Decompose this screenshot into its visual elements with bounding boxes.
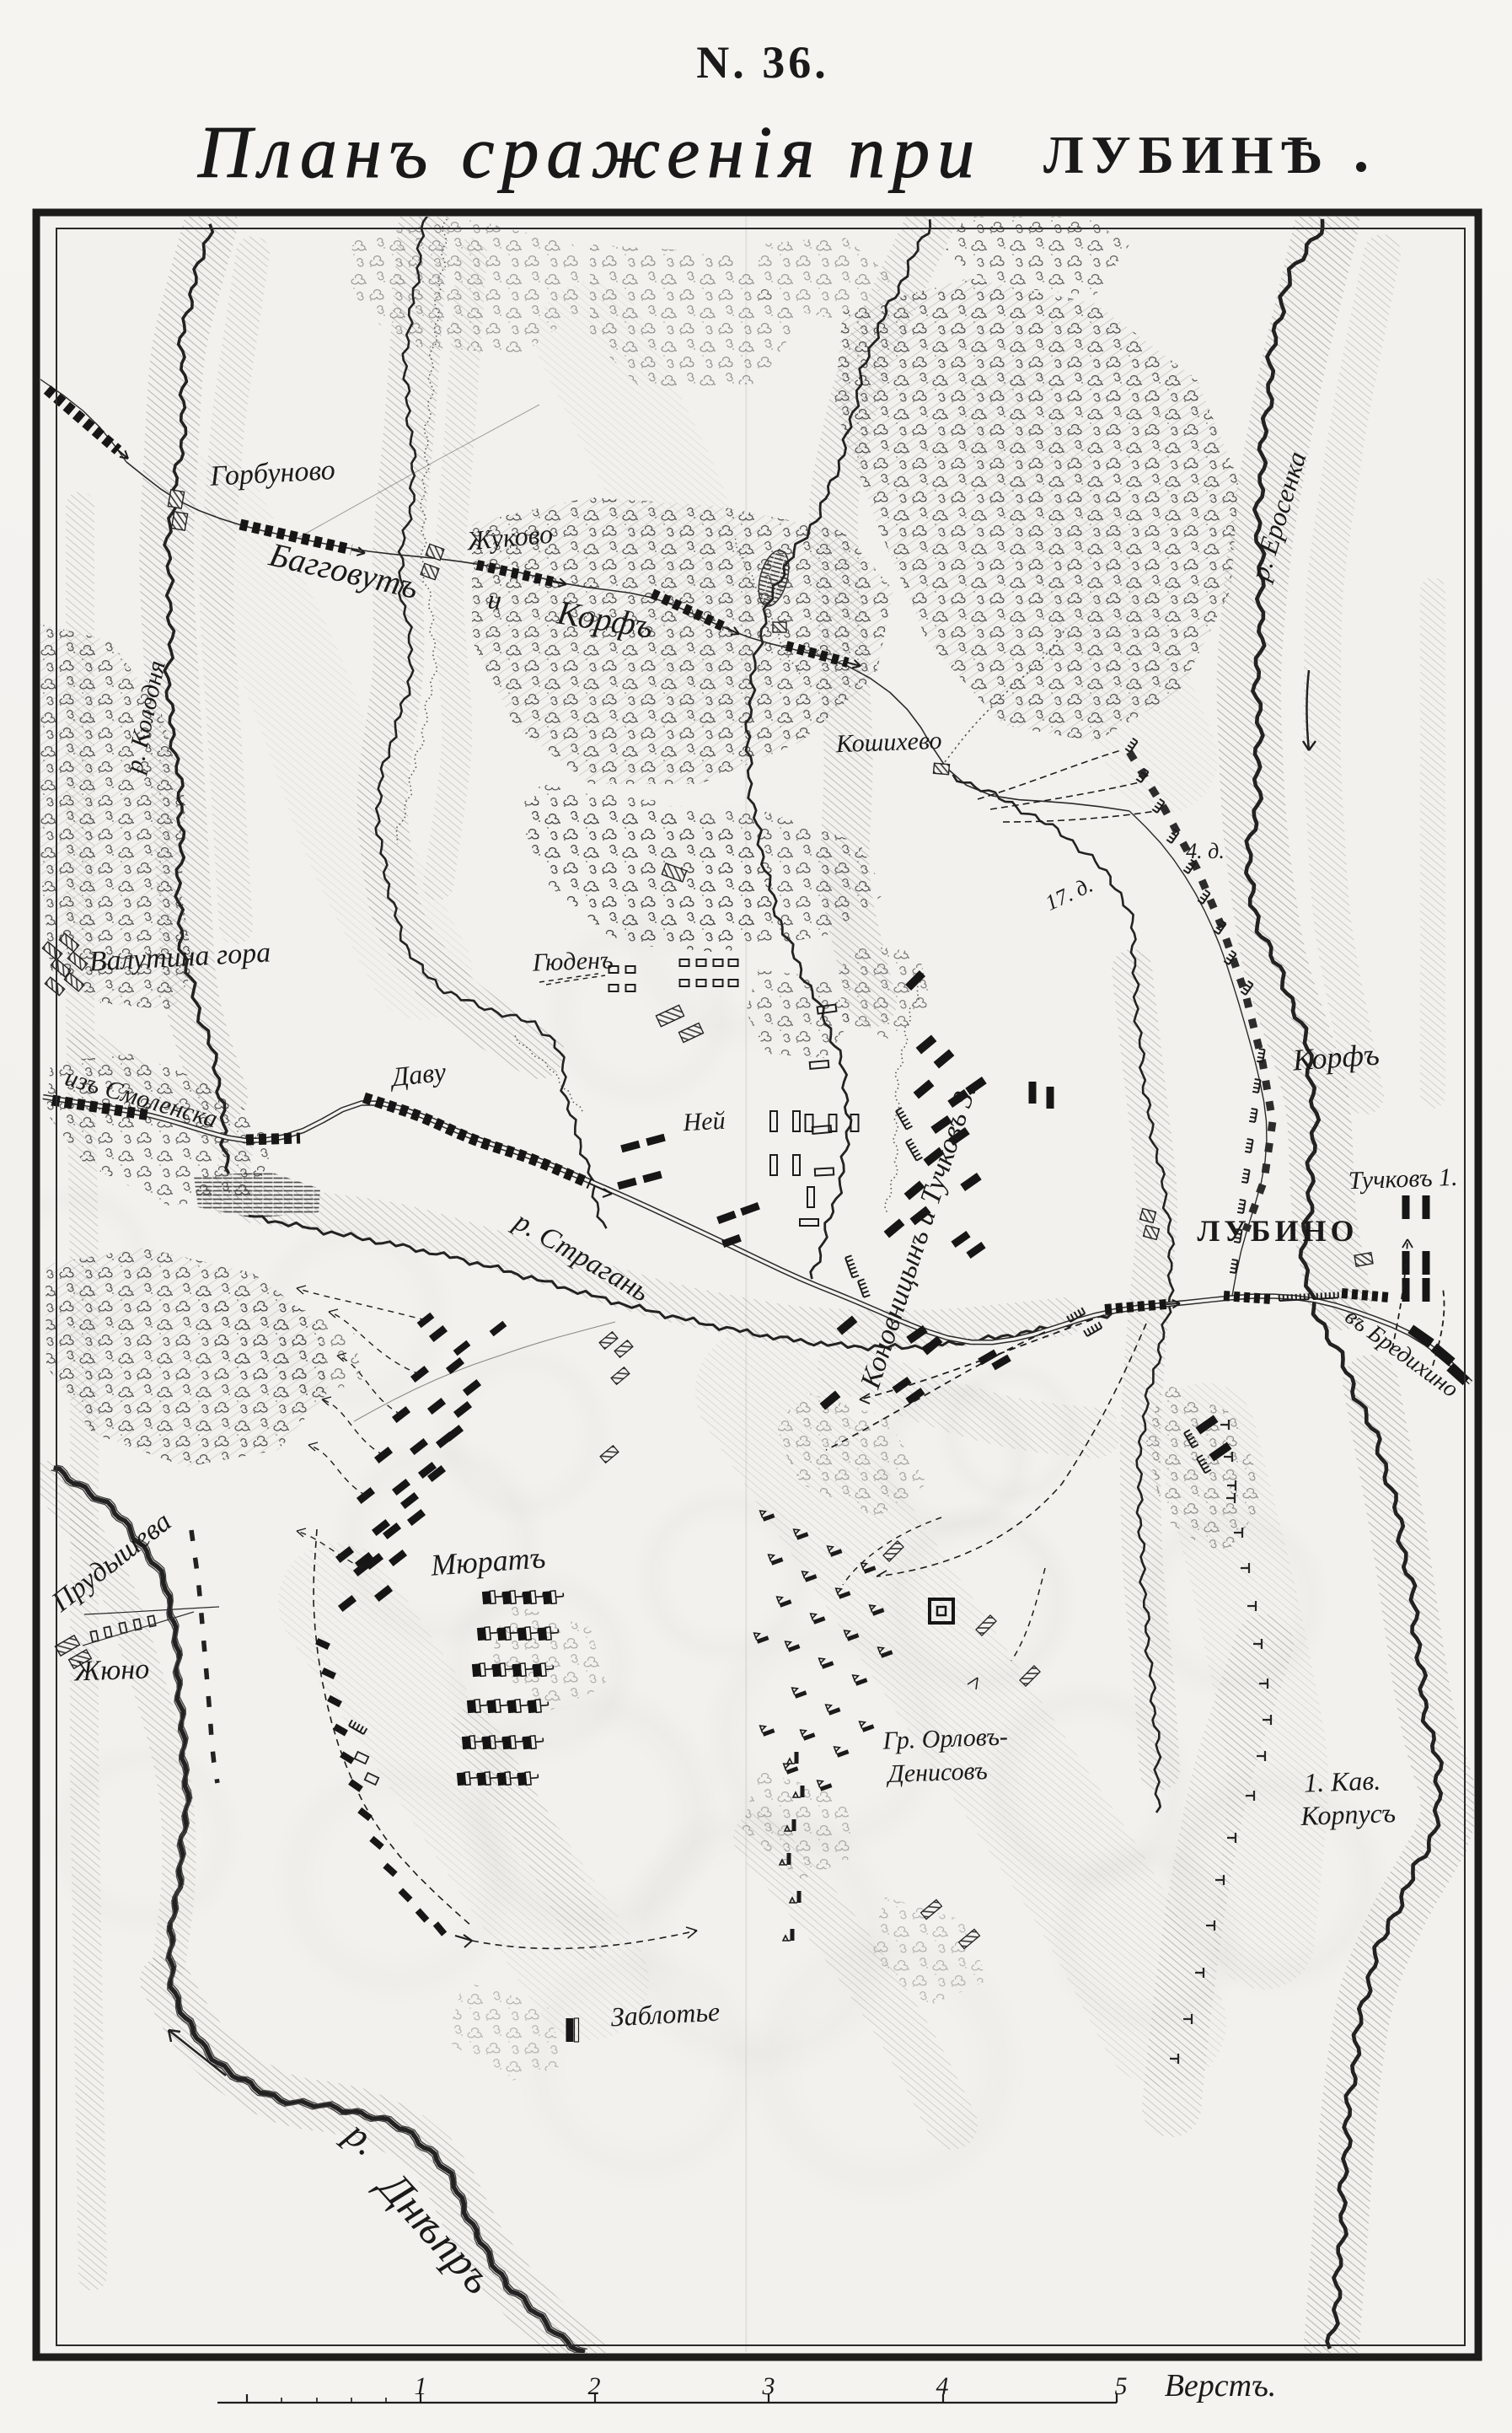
svg-text:Верстъ.: Верстъ. <box>1165 2368 1277 2403</box>
svg-text:5: 5 <box>1115 2372 1128 2400</box>
svg-text:3: 3 <box>762 2372 775 2400</box>
svg-text:1: 1 <box>415 2372 427 2400</box>
svg-text:1. Кав.: 1. Кав. <box>1303 1764 1381 1797</box>
svg-text:Тучковъ 1.: Тучковъ 1. <box>1348 1163 1458 1195</box>
svg-text:Корфъ: Корфъ <box>1291 1037 1381 1077</box>
svg-text:4: 4 <box>936 2372 949 2400</box>
svg-text:Гр. Орловъ-: Гр. Орловъ- <box>882 1722 1008 1754</box>
svg-text:Планъ сраженія при: Планъ сраженія при <box>197 112 982 194</box>
svg-text:Кошихево: Кошихево <box>834 727 942 758</box>
svg-text:N. 36.: N. 36. <box>696 37 829 88</box>
svg-text:Горбуново: Горбуново <box>208 454 335 492</box>
svg-text:2: 2 <box>588 2372 601 2400</box>
svg-text:Заблотье: Заблотье <box>610 1996 721 2033</box>
svg-text:Денисовъ: Денисовъ <box>885 1757 988 1788</box>
svg-text:ЛУБИНО: ЛУБИНО <box>1197 1214 1358 1248</box>
svg-text:Жюно: Жюно <box>73 1653 150 1687</box>
svg-text:Гюденъ: Гюденъ <box>531 946 614 976</box>
svg-text:и: и <box>486 583 502 615</box>
svg-text:4. д.: 4. д. <box>1186 839 1225 863</box>
svg-text:Корпусъ: Корпусъ <box>1300 1797 1397 1831</box>
svg-text:Даву: Даву <box>388 1056 448 1093</box>
svg-text:ЛУБИНѢ: ЛУБИНѢ <box>1043 125 1329 185</box>
svg-text:Ней: Ней <box>682 1107 727 1137</box>
